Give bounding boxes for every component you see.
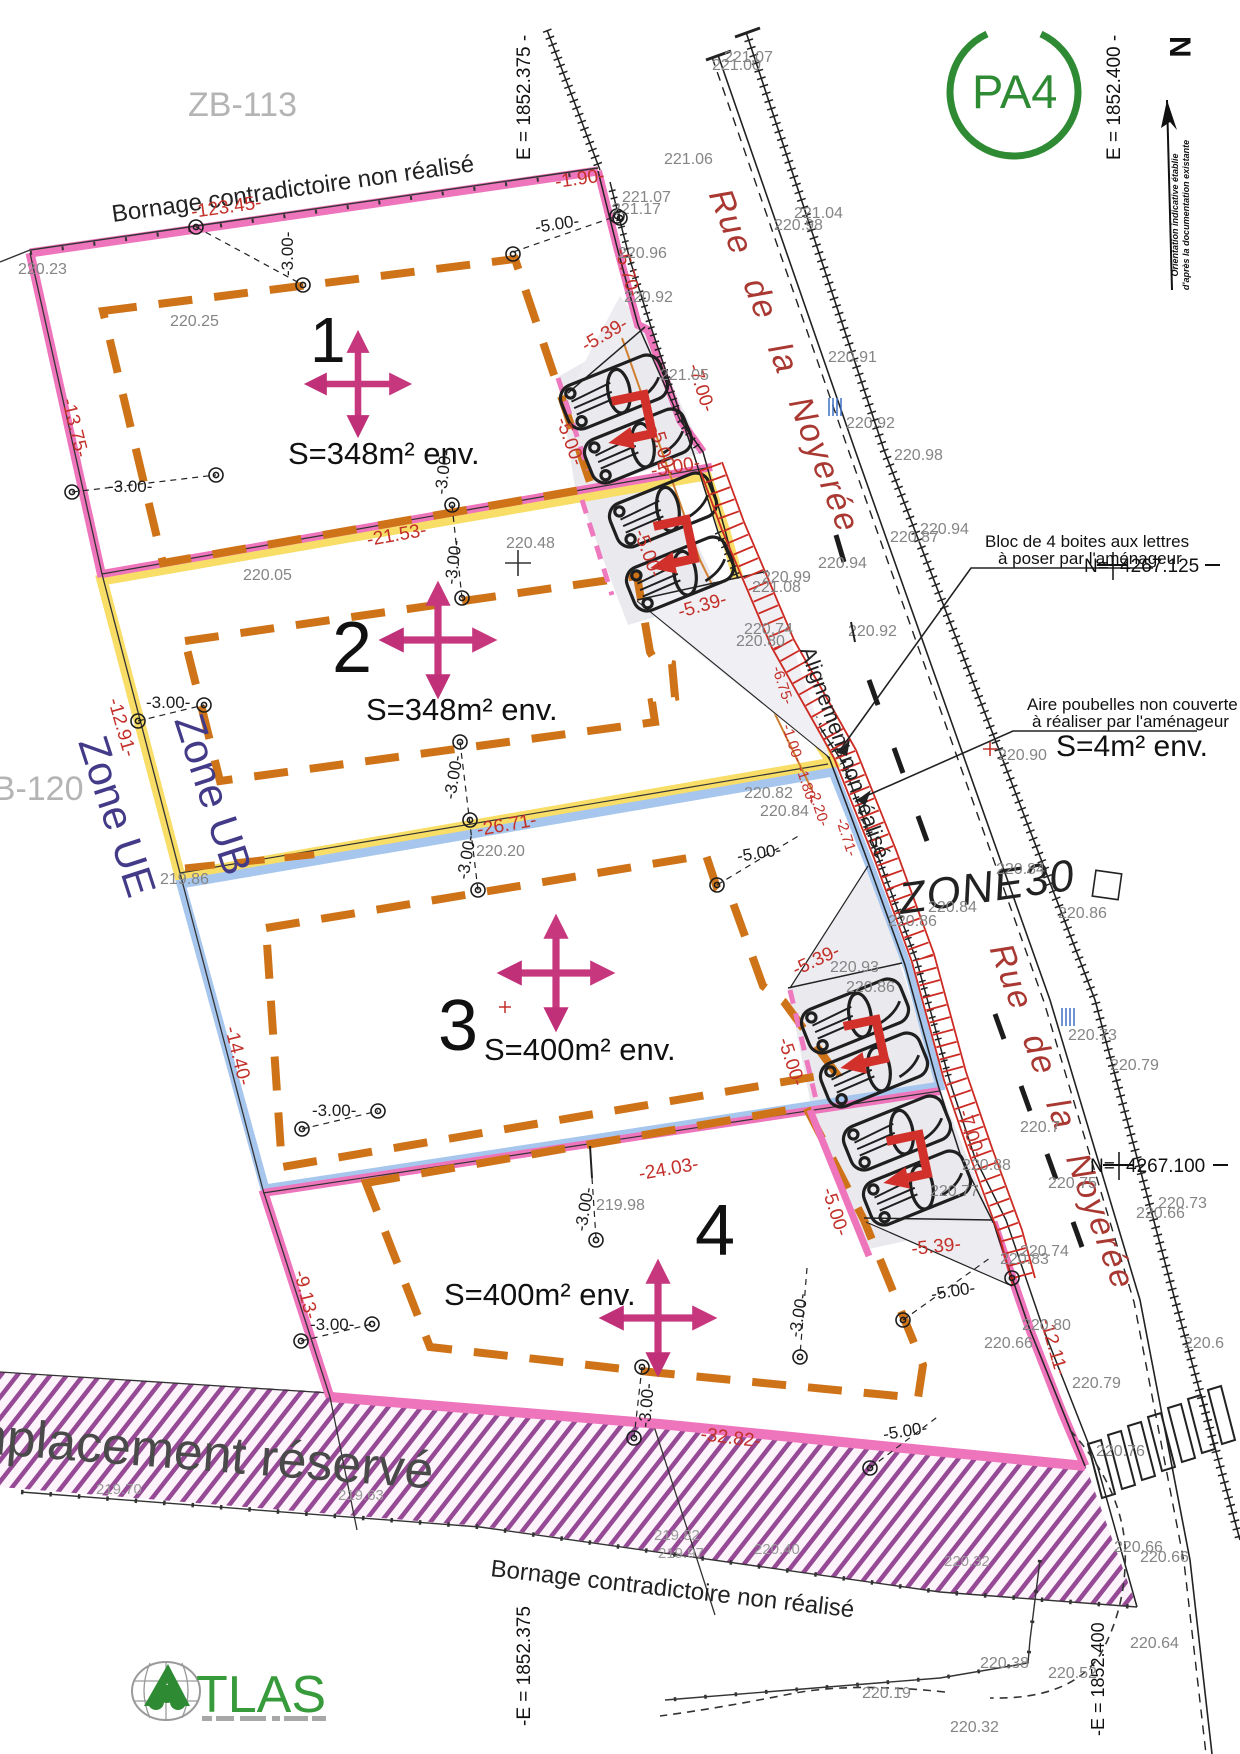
svg-text:219.82: 219.82	[654, 1527, 700, 1544]
svg-text:1: 1	[310, 304, 346, 376]
svg-text:219.98: 219.98	[596, 1197, 645, 1214]
svg-text:4267.100: 4267.100	[1126, 1156, 1205, 1177]
svg-text:E = 1852.400 -: E = 1852.400 -	[1104, 35, 1125, 160]
svg-text:220.92: 220.92	[846, 415, 895, 432]
svg-text:220.64: 220.64	[1130, 1635, 1179, 1652]
svg-text:220.84: 220.84	[996, 861, 1045, 878]
svg-text:E = 1852.375 -: E = 1852.375 -	[514, 35, 535, 160]
svg-text:220.32: 220.32	[944, 1553, 990, 1570]
svg-text:220.77: 220.77	[930, 1183, 979, 1200]
svg-text:220.90: 220.90	[998, 747, 1047, 764]
svg-text:220.38: 220.38	[980, 1655, 1029, 1672]
svg-text:221.06: 221.06	[664, 151, 713, 168]
svg-text:220.82: 220.82	[744, 785, 793, 802]
svg-text:221.05: 221.05	[660, 367, 709, 384]
svg-text:2: 2	[332, 608, 372, 688]
svg-text:N=: N=	[1090, 1156, 1115, 1177]
svg-text:220.92: 220.92	[624, 289, 673, 306]
svg-text:220.6: 220.6	[1184, 1335, 1224, 1352]
svg-text:220.76: 220.76	[1096, 1443, 1145, 1460]
svg-text:N=: N=	[1084, 556, 1109, 577]
svg-text:-3.00-: -3.00-	[312, 1101, 356, 1120]
svg-text:220.93: 220.93	[830, 959, 879, 976]
svg-text:219.97: 219.97	[658, 1545, 704, 1562]
svg-text:4267.125: 4267.125	[1120, 556, 1199, 577]
svg-text:220.40: 220.40	[754, 1541, 800, 1558]
svg-text:220.32: 220.32	[950, 1719, 999, 1736]
svg-text:220.80: 220.80	[736, 633, 785, 650]
svg-text:220.05: 220.05	[243, 567, 292, 584]
svg-text:220.88: 220.88	[962, 1157, 1011, 1174]
svg-text:Orientation indicative établie: Orientation indicative établie	[1170, 153, 1180, 276]
svg-text:220.83: 220.83	[1000, 1251, 1049, 1268]
svg-text:ZB-120: ZB-120	[0, 770, 84, 808]
svg-text:219.70: 219.70	[96, 1481, 142, 1498]
svg-text:219.86: 219.86	[160, 871, 209, 888]
svg-text:221.07: 221.07	[724, 49, 773, 66]
svg-text:220.25: 220.25	[170, 313, 219, 330]
svg-text:220.98: 220.98	[894, 447, 943, 464]
svg-text:TLAS: TLAS	[196, 1666, 326, 1724]
svg-text:220.20: 220.20	[476, 843, 525, 860]
svg-text:PA4: PA4	[972, 65, 1057, 118]
svg-text:-3.00-: -3.00-	[278, 232, 297, 276]
svg-text:-3.00-: -3.00-	[310, 1315, 354, 1334]
svg-text:-3.00-: -3.00-	[108, 477, 152, 496]
svg-text:3: 3	[438, 986, 478, 1066]
svg-text:S=348m² env.: S=348m² env.	[366, 692, 558, 727]
svg-text:-3.00-: -3.00-	[635, 1382, 658, 1428]
svg-text:220.94: 220.94	[920, 521, 969, 538]
svg-text:220.19: 220.19	[862, 1685, 911, 1702]
svg-text:-3.00-: -3.00-	[146, 693, 190, 712]
svg-text:d'après la documentation exist: d'après la documentation existante	[1181, 140, 1191, 290]
svg-text:220.52: 220.52	[1048, 1665, 1097, 1682]
svg-text:220.79: 220.79	[1072, 1375, 1121, 1392]
svg-text:220.48: 220.48	[506, 535, 555, 552]
svg-text:220.73: 220.73	[1068, 1027, 1117, 1044]
svg-text:220.94: 220.94	[818, 555, 867, 572]
svg-text:220.98: 220.98	[774, 217, 823, 234]
svg-text:220.91: 220.91	[828, 349, 877, 366]
svg-text:ZB-113: ZB-113	[188, 86, 297, 124]
svg-text:S=400m² env.: S=400m² env.	[444, 1277, 636, 1312]
svg-text:220.66: 220.66	[984, 1335, 1033, 1352]
svg-text:220.86: 220.86	[846, 979, 895, 996]
svg-text:220.96: 220.96	[618, 245, 667, 262]
svg-text:220.79: 220.79	[1110, 1057, 1159, 1074]
svg-text:221.08: 221.08	[752, 579, 801, 596]
svg-text:S=4m² env.: S=4m² env.	[1056, 730, 1208, 763]
svg-text:à réaliser par l'aménageur: à réaliser par l'aménageur	[1032, 712, 1229, 731]
svg-text:-E = 1852.375: -E = 1852.375	[514, 1606, 535, 1726]
svg-text:220.23: 220.23	[18, 261, 67, 278]
svg-text:N: N	[1163, 36, 1196, 58]
svg-text:220.80: 220.80	[1022, 1317, 1071, 1334]
svg-text:220.84: 220.84	[760, 803, 809, 820]
svg-text:220.86: 220.86	[888, 913, 937, 930]
svg-text:220.92: 220.92	[848, 623, 897, 640]
svg-text:220.66: 220.66	[1140, 1549, 1189, 1566]
svg-text:219.63: 219.63	[338, 1487, 384, 1504]
svg-text:4: 4	[695, 1191, 735, 1271]
svg-text:220.75: 220.75	[1048, 1175, 1097, 1192]
svg-text:220.7: 220.7	[1020, 1119, 1060, 1136]
svg-text:S=400m² env.: S=400m² env.	[484, 1032, 676, 1067]
svg-text:220.66: 220.66	[1136, 1205, 1185, 1222]
svg-text:220.86: 220.86	[1058, 905, 1107, 922]
